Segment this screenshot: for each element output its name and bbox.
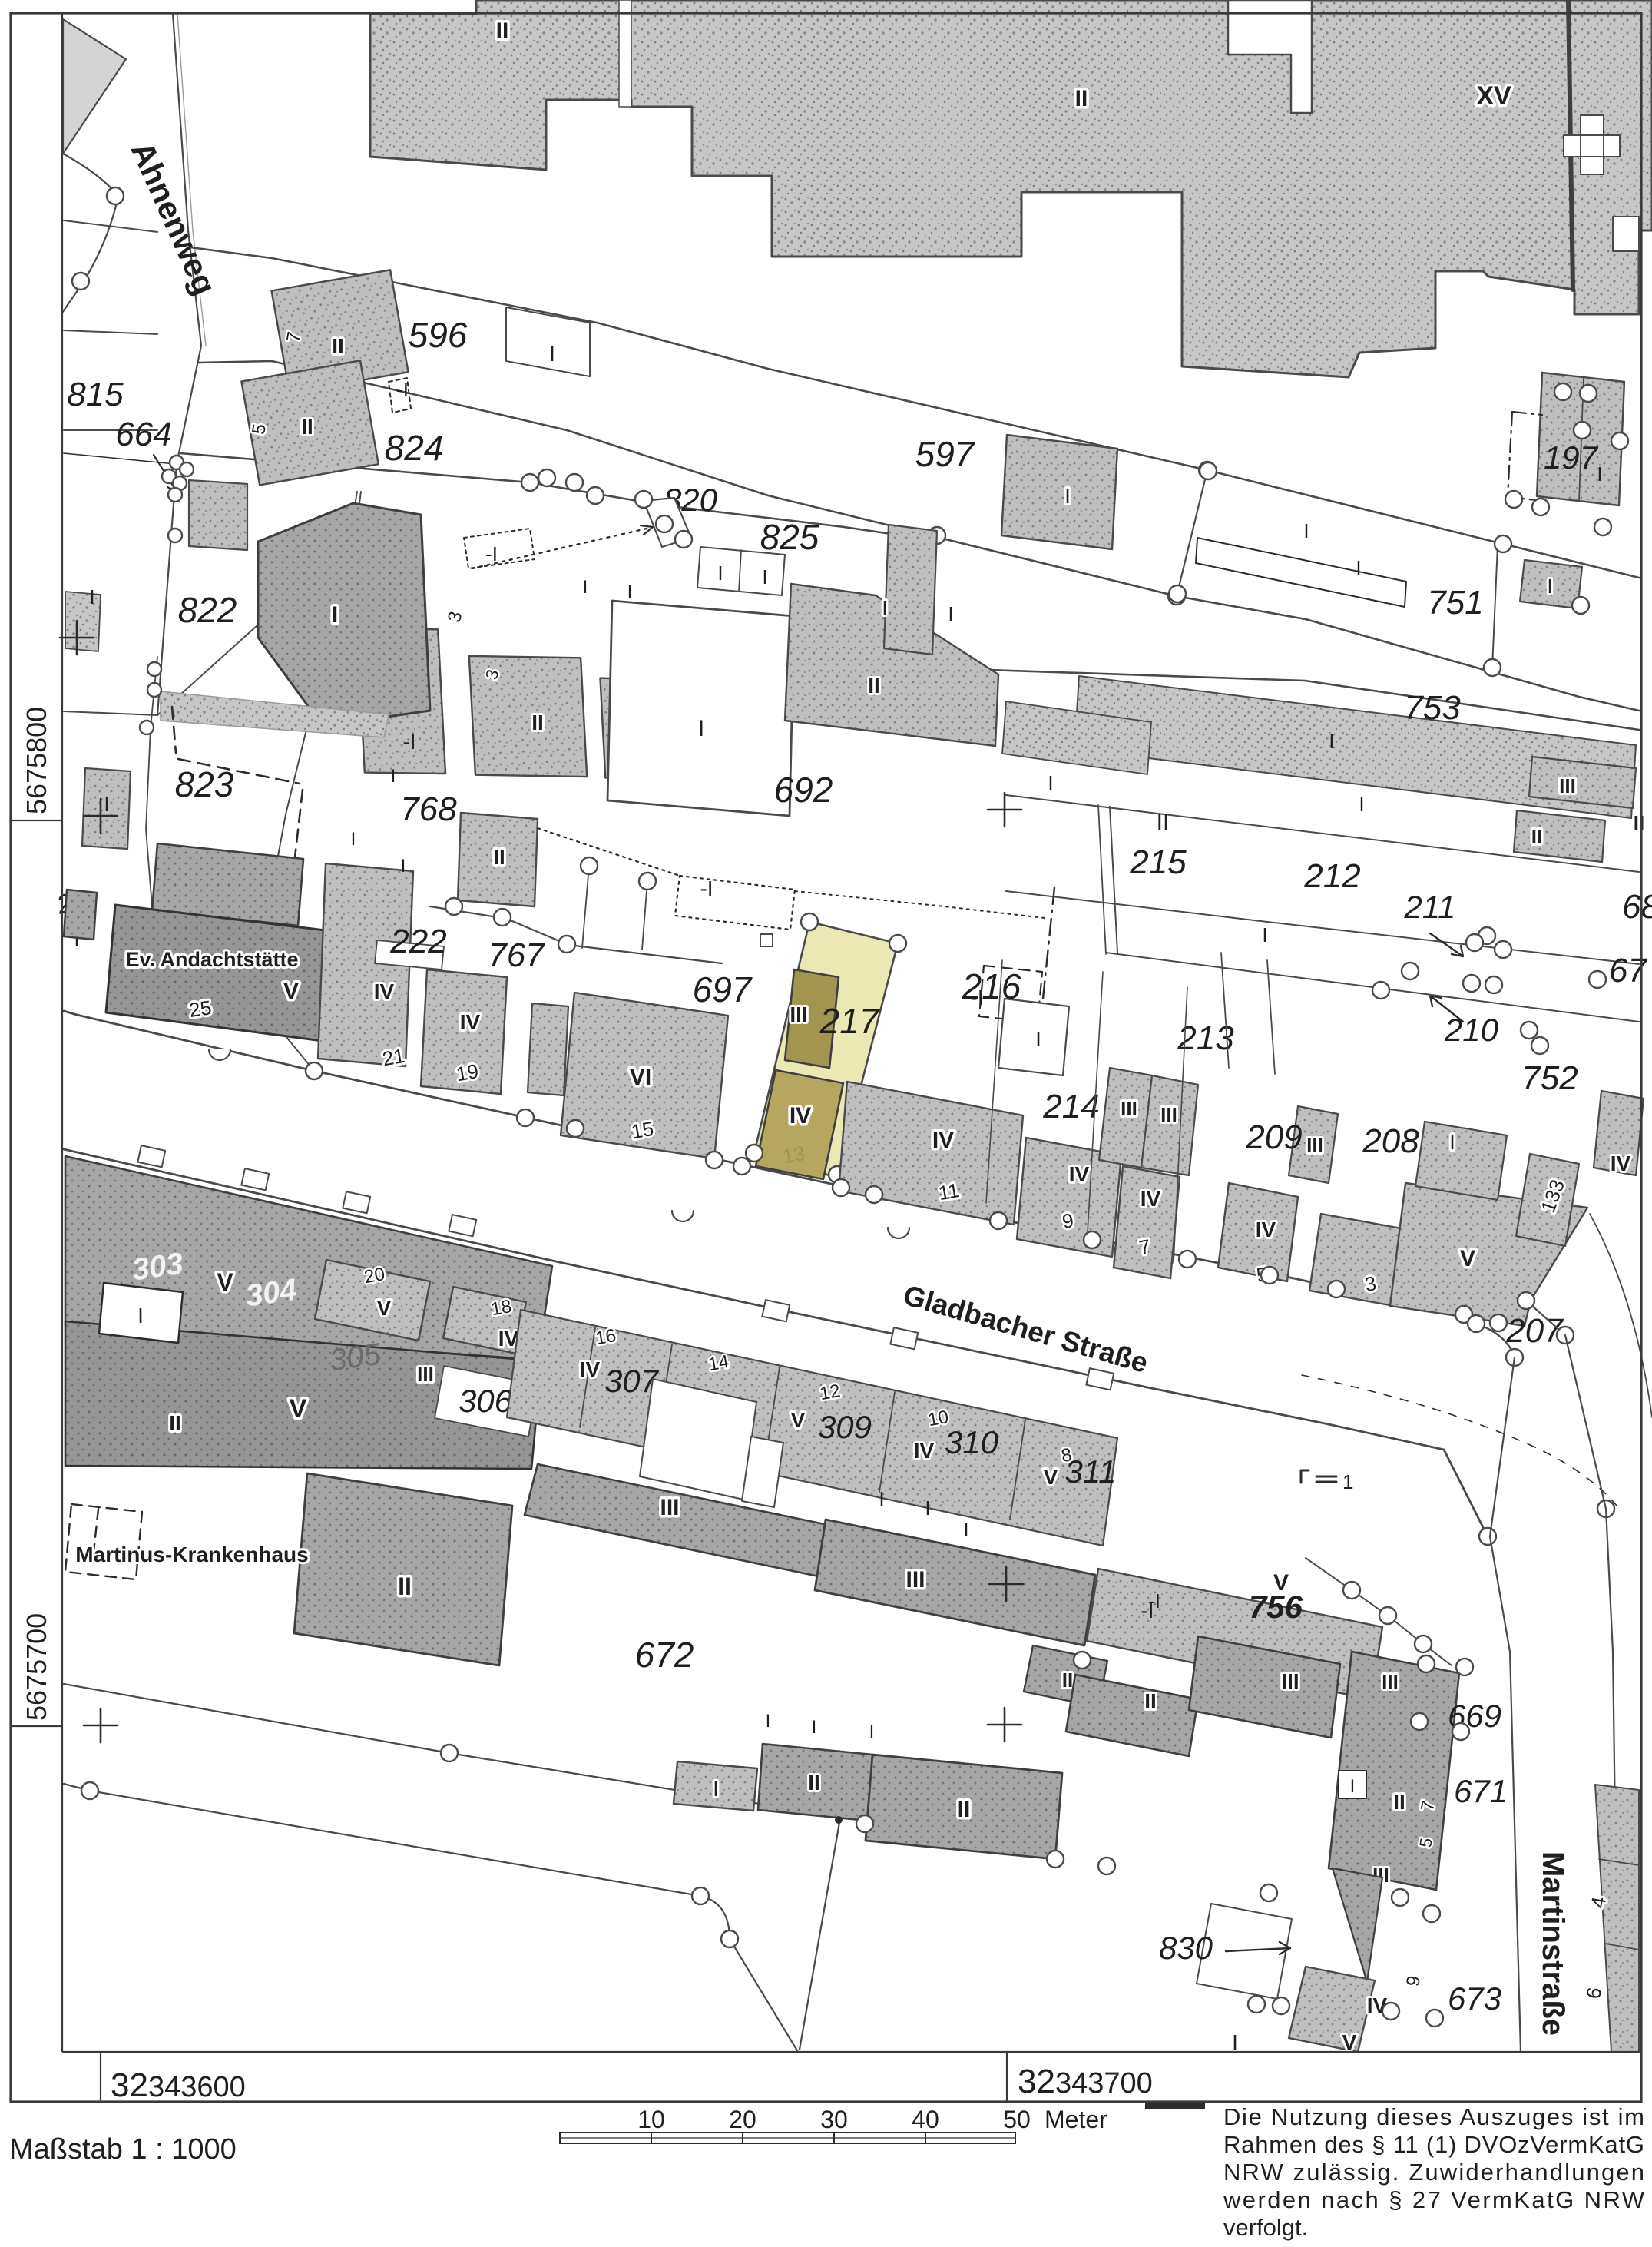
svg-text:I: I [549,342,555,366]
svg-text:IV: IV [1141,1187,1161,1211]
svg-text:309: 309 [818,1409,872,1445]
svg-text:68: 68 [1622,888,1652,926]
svg-text:I: I [1547,575,1552,598]
svg-text:V: V [791,1408,806,1432]
svg-text:verfolgt.: verfolgt. [1223,2214,1308,2241]
svg-text:I: I [925,1496,930,1520]
svg-text:Martinstraße: Martinstraße [1536,1851,1570,2036]
svg-text:I: I [1597,462,1602,486]
svg-text:5675700: 5675700 [21,1613,52,1721]
svg-text:I: I [713,1777,719,1801]
svg-text:I: I [882,596,887,619]
svg-text:14: 14 [707,1351,730,1375]
svg-text:I: I [1064,484,1071,508]
svg-text:V: V [217,1268,233,1296]
svg-text:32343600: 32343600 [111,2066,246,2104]
svg-text:IV: IV [932,1128,954,1153]
svg-text:596: 596 [409,315,468,355]
svg-text:NRW zulässig. Zuwiderhandlunge: NRW zulässig. Zuwiderhandlungen [1223,2159,1644,2186]
svg-text:II: II [496,18,509,44]
svg-text:Meter: Meter [1045,2106,1107,2133]
svg-text:V: V [1342,2030,1357,2054]
svg-text:II: II [1062,1669,1073,1692]
svg-text:767: 767 [488,936,545,974]
svg-text:IV: IV [460,1010,481,1034]
svg-text:VI: VI [630,1065,651,1090]
svg-text:303: 303 [130,1247,185,1288]
svg-text:I: I [1048,771,1053,794]
svg-text:311: 311 [1065,1453,1117,1490]
svg-text:II: II [958,1797,971,1822]
svg-text:18: 18 [489,1296,513,1320]
svg-text:II: II [493,845,505,869]
svg-text:19: 19 [455,1059,481,1086]
svg-text:II: II [301,415,313,439]
svg-text:V: V [1044,1465,1058,1489]
svg-text:I: I [879,1487,884,1510]
svg-text:II: II [1531,825,1542,848]
svg-text:III: III [1306,1134,1323,1157]
svg-text:werden nach § 27 VermKatG NRW: werden nach § 27 VermKatG NRW [1223,2186,1645,2213]
svg-text:II: II [868,674,880,698]
svg-text:830: 830 [1159,1930,1213,1966]
svg-text:10: 10 [637,2106,665,2133]
svg-text:I: I [391,766,396,787]
svg-text:-I: -I [700,877,713,900]
svg-text:50: 50 [1003,2106,1031,2133]
svg-text:II: II [1157,810,1170,835]
svg-text:210: 210 [1444,1012,1499,1048]
svg-text:III: III [1160,1103,1177,1126]
svg-text:I: I [963,1518,968,1541]
svg-text:I: I [332,602,338,628]
svg-text:Martinus-Krankenhaus: Martinus-Krankenhaus [75,1543,308,1566]
svg-text:II: II [332,334,344,358]
svg-text:III: III [1559,774,1576,797]
svg-text:III: III [1281,1669,1299,1693]
svg-text:I: I [137,1304,144,1327]
svg-text:IV: IV [1069,1162,1090,1186]
svg-text:I: I [717,562,723,585]
svg-text:671: 671 [1454,1773,1508,1809]
svg-text:I: I [1262,923,1267,946]
svg-text:II: II [1144,1689,1157,1713]
svg-text:214: 214 [1042,1088,1099,1125]
svg-text:IV: IV [1256,1218,1276,1241]
svg-text:692: 692 [774,770,833,810]
svg-text:305: 305 [327,1337,383,1378]
svg-text:I: I [1449,1130,1455,1154]
svg-text:697: 697 [693,969,753,1009]
svg-text:822: 822 [178,590,237,630]
svg-text:Maßstab 1 : 1000: Maßstab 1 : 1000 [9,2133,237,2166]
svg-text:II: II [531,711,544,734]
svg-text:V: V [290,1394,307,1423]
svg-text:217: 217 [819,1001,880,1041]
svg-text:-I: -I [485,542,498,565]
svg-text:IV: IV [914,1439,935,1463]
svg-text:I: I [1356,556,1361,579]
svg-text:664: 664 [115,416,171,453]
svg-text:III: III [790,1003,807,1026]
svg-text:209: 209 [1245,1119,1302,1156]
svg-text:15: 15 [630,1117,656,1144]
svg-text:III: III [1121,1097,1137,1120]
svg-text:I: I [766,1711,771,1732]
svg-text:-I: -I [1148,1589,1160,1612]
svg-text:30: 30 [820,2106,848,2133]
svg-text:823: 823 [175,764,234,804]
svg-text:11: 11 [937,1178,962,1205]
svg-text:IV: IV [374,979,395,1003]
svg-text:II: II [1075,86,1088,111]
svg-text:I: I [401,856,406,877]
svg-text:32343700: 32343700 [1018,2063,1153,2100]
svg-text:21: 21 [381,1044,407,1071]
svg-text:673: 673 [1448,1980,1501,2017]
svg-text:815: 815 [67,376,124,413]
svg-text:-I: -I [402,730,415,754]
svg-text:208: 208 [1362,1122,1419,1160]
svg-text:20: 20 [363,1264,386,1288]
svg-text:16: 16 [594,1325,617,1349]
svg-text:12: 12 [818,1380,842,1404]
svg-text:I: I [698,716,704,741]
svg-text:768: 768 [400,790,457,828]
svg-text:Rahmen des § 11 (1) DVOzVermKa: Rahmen des § 11 (1) DVOzVermKatG [1223,2131,1644,2158]
svg-text:III: III [1382,1670,1399,1693]
svg-text:II: II [398,1573,412,1600]
svg-text:III: III [417,1363,434,1386]
svg-text:II: II [808,1771,820,1795]
svg-text:I: I [351,829,356,850]
svg-text:207: 207 [1505,1312,1564,1350]
svg-text:756: 756 [1249,1589,1303,1625]
svg-text:215: 215 [1129,843,1187,881]
svg-text:III: III [660,1495,679,1520]
svg-text:I: I [1329,729,1335,753]
svg-text:304: 304 [243,1273,299,1314]
svg-text:13: 13 [781,1142,807,1168]
svg-text:V: V [1460,1246,1475,1271]
svg-text:824: 824 [385,428,444,468]
svg-text:306: 306 [459,1383,513,1419]
svg-text:I: I [1303,519,1309,542]
svg-text:I: I [869,1722,875,1742]
svg-text:I: I [1232,2030,1238,2054]
svg-text:I: I [948,602,953,625]
svg-text:IV: IV [790,1103,811,1128]
svg-text:I: I [1035,1027,1041,1051]
svg-text:II: II [1634,811,1644,834]
svg-text:I: I [812,1717,817,1738]
svg-text:825: 825 [760,517,819,557]
svg-text:222: 222 [389,923,446,960]
svg-text:I: I [89,585,94,608]
svg-text:752: 752 [1521,1059,1578,1097]
svg-text:IV: IV [1611,1152,1631,1175]
svg-text:V: V [377,1296,392,1320]
svg-text:40: 40 [912,2106,939,2133]
svg-text:310: 310 [945,1424,999,1460]
svg-text:Ev. Andachtstätte: Ev. Andachtstätte [125,948,298,971]
svg-text:IV: IV [580,1357,601,1381]
svg-text:20: 20 [729,2106,756,2133]
svg-text:II: II [1393,1790,1405,1814]
svg-text:-I: -I [396,378,409,401]
svg-text:I: I [1350,1776,1356,1797]
svg-text:212: 212 [1303,857,1360,895]
svg-text:25: 25 [187,996,213,1022]
svg-text:751: 751 [1427,584,1483,621]
svg-text:672: 672 [635,1635,694,1675]
svg-text:5675800: 5675800 [21,707,52,814]
svg-text:597: 597 [915,434,975,474]
svg-text:II: II [169,1411,181,1435]
svg-text:V: V [283,979,299,1004]
svg-text:197: 197 [1544,439,1599,476]
svg-text:I: I [1359,793,1364,816]
svg-text:I: I [583,577,588,598]
svg-text:I: I [104,793,109,816]
svg-text:211: 211 [1404,889,1456,925]
svg-text:I: I [627,582,633,602]
svg-text:1: 1 [1342,1470,1353,1493]
svg-text:I: I [762,565,767,588]
svg-text:XV: XV [1476,81,1511,111]
svg-text:753: 753 [1404,689,1461,727]
svg-text:III: III [905,1567,925,1592]
